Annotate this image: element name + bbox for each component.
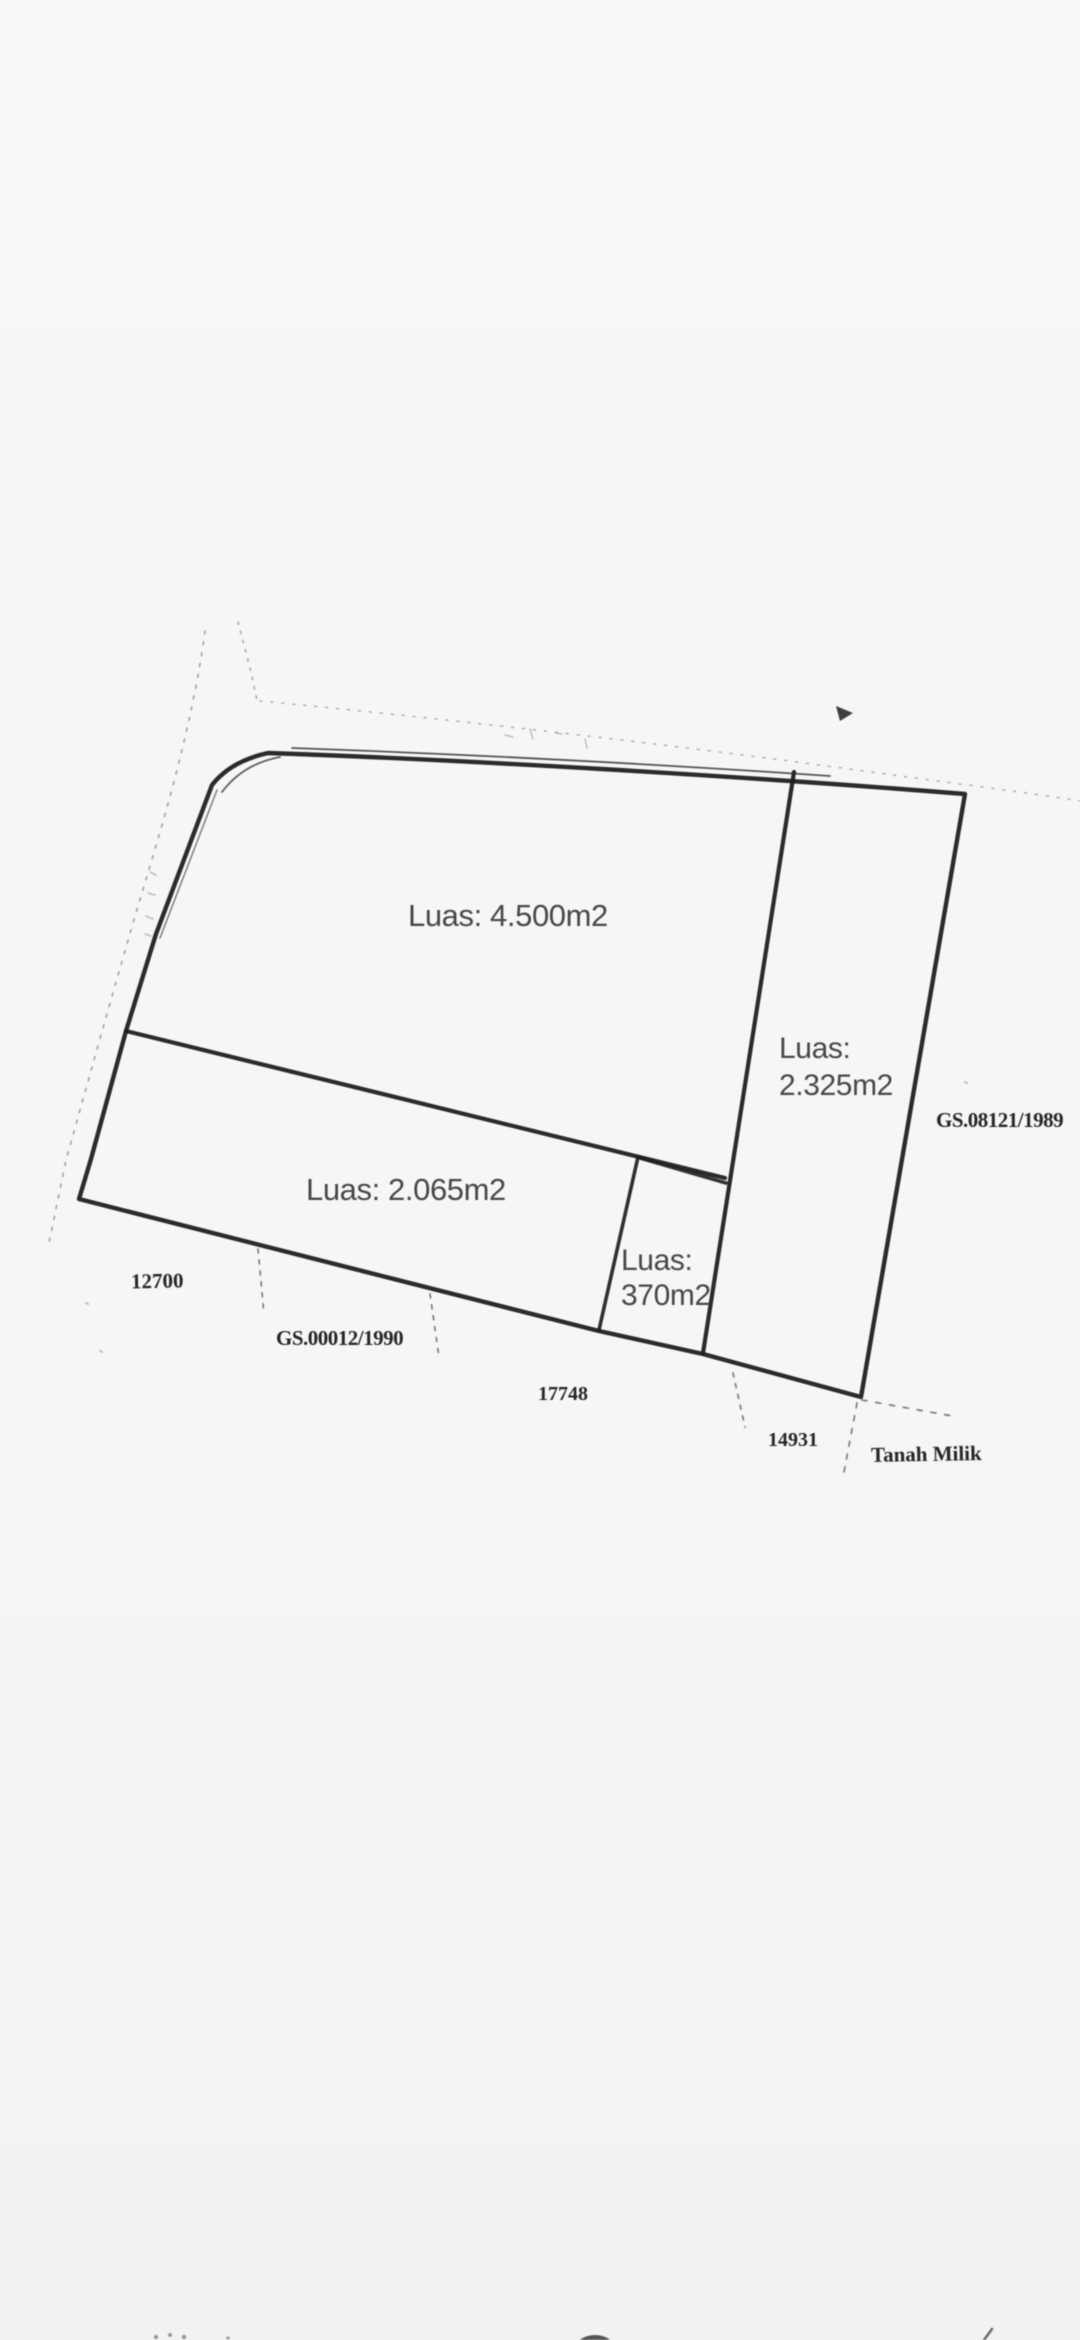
bottom-edge-cropped-marks xyxy=(154,2329,992,2340)
cropped-dots xyxy=(168,2333,172,2337)
plot-2325-line1: Luas: xyxy=(779,1030,893,1067)
divider-horizontal xyxy=(126,1031,725,1178)
dimension-17748: 17748 xyxy=(538,1383,588,1406)
small-plot-top-double xyxy=(640,1158,726,1183)
corner-double-stroke xyxy=(222,757,280,792)
plot-2325-area-label: Luas: 2.325m2 xyxy=(779,1030,893,1104)
cropped-dots xyxy=(154,2335,158,2339)
plot-370-line1: Luas: xyxy=(621,1243,711,1278)
road-branch-dashed-line xyxy=(238,622,257,700)
plot-370-line2: 370m2 xyxy=(621,1278,711,1313)
dimension-12700: 12700 xyxy=(131,1269,184,1295)
corner-dash-down xyxy=(844,1403,857,1472)
cropped-dark-blob xyxy=(577,2335,613,2340)
left-edge-double-stroke xyxy=(160,790,217,938)
left-edge-glyphs xyxy=(145,872,156,936)
plot-4500-area-label: Luas: 4.500m2 xyxy=(408,898,608,934)
land-plot-sketch xyxy=(0,0,1080,2340)
corner-dash-right xyxy=(862,1400,958,1417)
cropped-dots xyxy=(182,2335,186,2339)
top-edge-double-stroke xyxy=(292,748,830,776)
north-smudge-mark xyxy=(836,706,853,721)
road-left-dashed-line xyxy=(49,631,205,1243)
plot-370-area-label: Luas: 370m2 xyxy=(621,1243,711,1313)
tanah-milik-label: Tanah Milik xyxy=(871,1441,982,1468)
cropped-dots xyxy=(226,2336,230,2340)
plot-2325-line2: 2.325m2 xyxy=(779,1067,893,1104)
dimension-14931: 14931 xyxy=(768,1429,818,1452)
gs-number-right: GS.08121/1989 xyxy=(936,1108,1063,1133)
tick-left xyxy=(258,1249,264,1314)
tick-middle xyxy=(430,1294,439,1357)
tick-right xyxy=(733,1373,745,1427)
cropped-tick xyxy=(984,2329,992,2340)
scanned-document-page: Luas: 4.500m2 Luas: 2.325m2 Luas: 2.065m… xyxy=(0,0,1080,2340)
gs-number-bottom: GS.00012/1990 xyxy=(276,1326,403,1351)
plot-2065-area-label: Luas: 2.065m2 xyxy=(306,1172,506,1208)
